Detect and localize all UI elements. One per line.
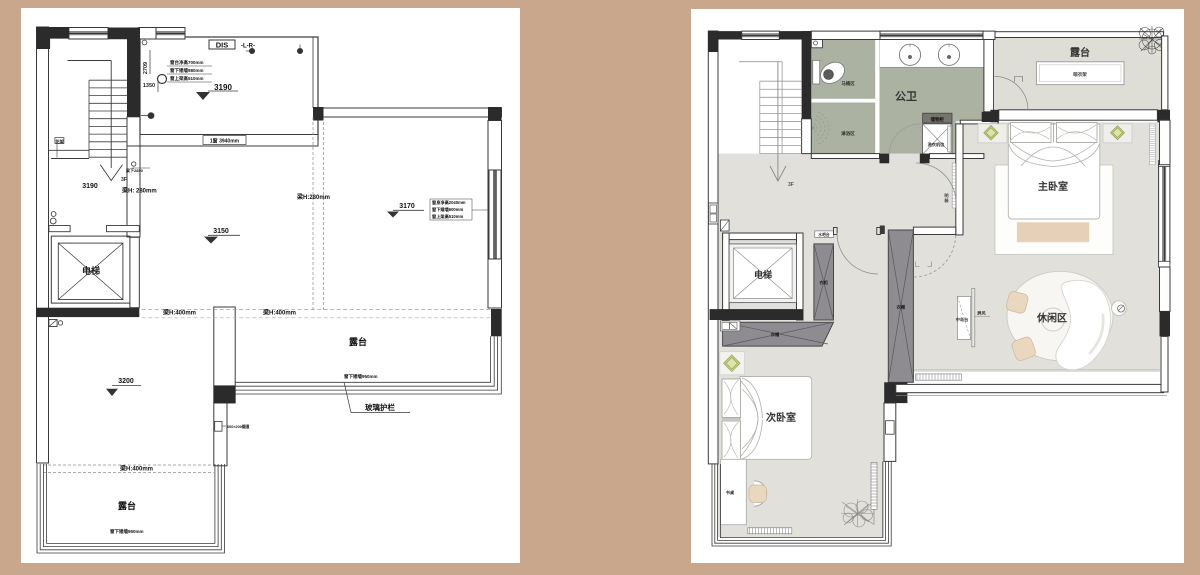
svg-text:梁H:280mm: 梁H:280mm [297,193,330,201]
svg-text:公卫: 公卫 [895,90,917,103]
svg-text:3190: 3190 [82,183,98,190]
svg-text:马桶区: 马桶区 [841,80,855,87]
svg-text:露台: 露台 [118,500,136,511]
svg-text:中岛台: 中岛台 [956,316,969,323]
svg-text:2709: 2709 [143,62,149,74]
svg-text:1窗 3940mm: 1窗 3940mm [210,138,240,145]
svg-text:花架: 花架 [55,138,64,145]
svg-text:次卧室: 次卧室 [766,411,796,424]
svg-text:电梯: 电梯 [82,265,100,276]
svg-text:装: 装 [943,197,949,204]
svg-text:窗下矮墙950mm: 窗下矮墙950mm [110,528,144,535]
svg-text:电梯: 电梯 [754,269,772,280]
svg-text:3F: 3F [121,177,127,183]
svg-text:窗台净高700mm: 窗台净高700mm [170,59,204,66]
svg-text:600×200烟道: 600×200烟道 [227,424,250,429]
svg-text:窗上梁高510mm: 窗上梁高510mm [432,213,463,220]
svg-text:窗上梁高510mm: 窗上梁高510mm [170,75,204,82]
svg-text:水吧台: 水吧台 [817,232,830,237]
svg-text:3200: 3200 [118,378,134,385]
svg-text:3150: 3150 [213,228,229,235]
svg-text:3F: 3F [788,182,794,188]
svg-text:梁H:400mm: 梁H:400mm [263,309,296,317]
svg-text:窗下矮墙980mm: 窗下矮墙980mm [170,67,204,74]
svg-text:屏风: 屏风 [977,310,986,317]
svg-text:淋浴区: 淋浴区 [841,130,855,137]
svg-text:衣帽: 衣帽 [771,331,779,338]
svg-text:储物柜: 储物柜 [931,116,945,123]
svg-text:衣柜: 衣柜 [820,279,829,286]
svg-text:休闲区: 休闲区 [1036,312,1067,325]
svg-text:梁下2850: 梁下2850 [125,167,144,173]
svg-text:晾衣架: 晾衣架 [1073,71,1087,78]
svg-text:主卧室: 主卧室 [1038,180,1068,193]
svg-text:1350: 1350 [143,83,155,89]
svg-text:玻璃护栏: 玻璃护栏 [365,402,395,412]
svg-text:露台: 露台 [1070,46,1090,59]
svg-text:DIS: DIS [216,41,229,50]
svg-text:窗下矮墙600mm: 窗下矮墙600mm [432,206,463,213]
svg-text:衣帽: 衣帽 [897,304,905,311]
svg-text:3170: 3170 [399,203,415,210]
svg-text:窗身净高2040mm: 窗身净高2040mm [432,199,466,206]
svg-text:露台: 露台 [349,336,367,347]
svg-text:梁H:400mm: 梁H:400mm [120,465,153,473]
svg-text:窗下矮墙950mm: 窗下矮墙950mm [344,373,378,380]
svg-text:洗衣机位: 洗衣机位 [928,141,946,148]
svg-text:书桌: 书桌 [726,489,735,496]
svg-text:梁H:400mm: 梁H:400mm [163,309,196,317]
svg-text:梁H: 280mm: 梁H: 280mm [122,187,157,195]
